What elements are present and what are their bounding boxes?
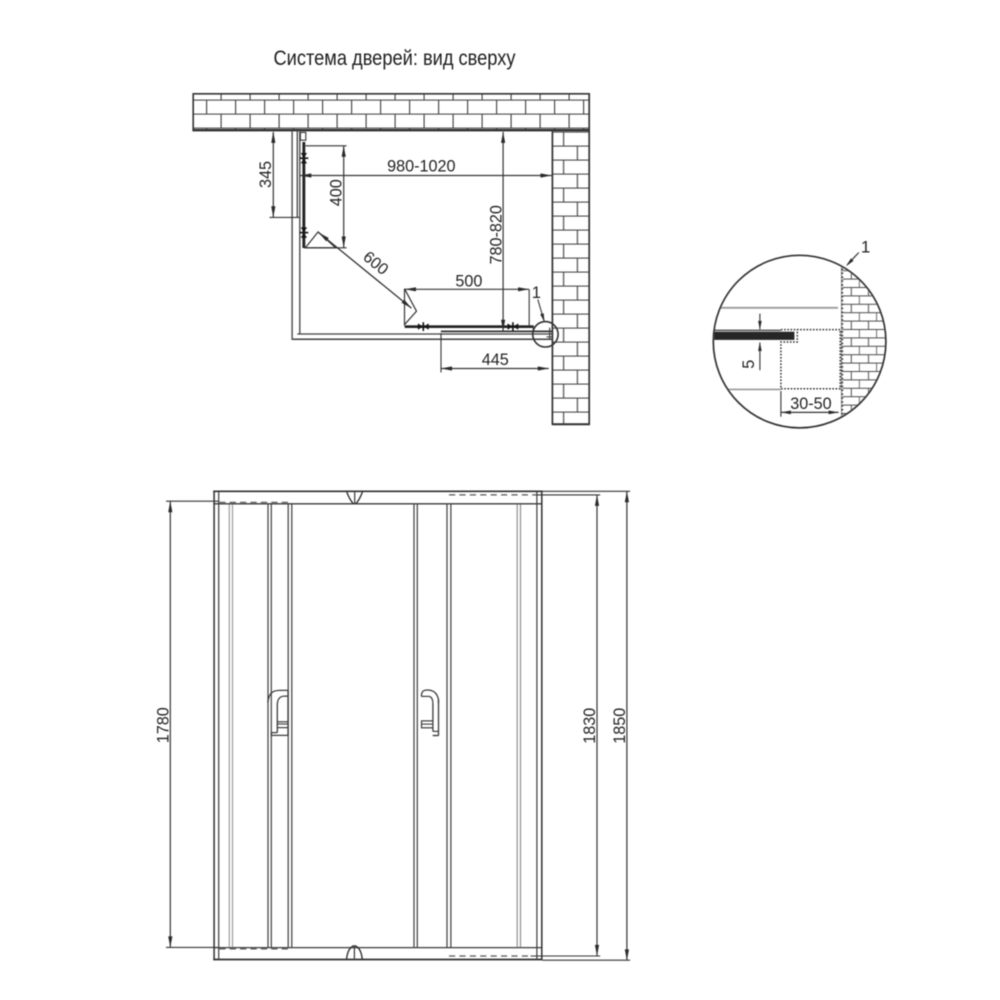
svg-text:400: 400 (327, 179, 345, 206)
svg-text:780-820: 780-820 (488, 205, 506, 264)
svg-text:1: 1 (532, 284, 541, 302)
svg-text:Система дверей: вид сверху: Система дверей: вид сверху (274, 46, 516, 70)
svg-text:1830: 1830 (581, 708, 599, 744)
svg-text:1780: 1780 (154, 707, 172, 743)
svg-text:1850: 1850 (611, 708, 629, 744)
svg-text:345: 345 (257, 161, 275, 188)
svg-text:5: 5 (740, 360, 758, 369)
svg-text:445: 445 (482, 351, 509, 369)
svg-text:30-50: 30-50 (790, 395, 831, 413)
svg-text:980-1020: 980-1020 (387, 158, 455, 176)
svg-text:1: 1 (861, 238, 870, 257)
svg-text:500: 500 (455, 272, 482, 290)
svg-text:600: 600 (359, 248, 391, 279)
